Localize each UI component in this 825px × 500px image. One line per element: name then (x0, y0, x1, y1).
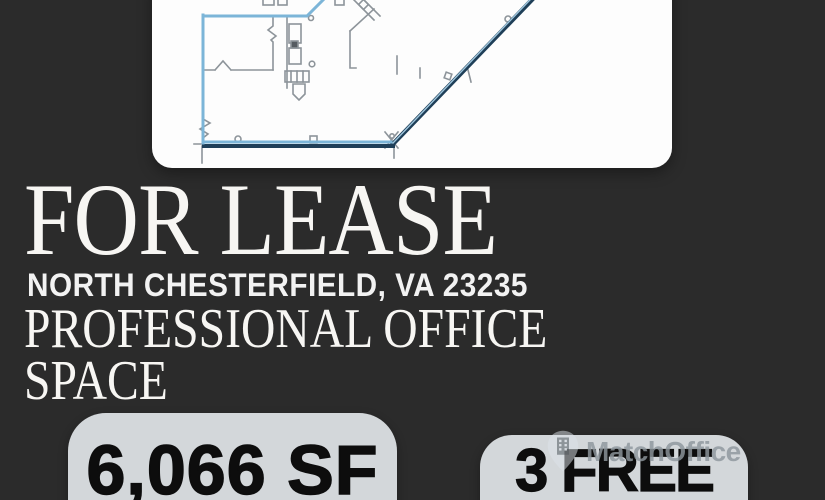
location-line: NORTH CHESTERFIELD, VA 23235 (27, 269, 528, 301)
offer-badge-label: 3 FREE (480, 435, 748, 500)
page-title: FOR LEASE (24, 169, 497, 272)
area-badge-label: 6,066 SF (68, 413, 397, 500)
flyer-poster: FOR LEASE NORTH CHESTERFIELD, VA 23235 P… (0, 0, 825, 500)
floor-plan-drawing (152, 0, 672, 168)
area-badge: 6,066 SF (68, 413, 397, 500)
subtitle: PROFESSIONAL OFFICE SPACE (24, 303, 611, 407)
floor-plan-card (152, 0, 672, 168)
offer-badge: 3 FREE (480, 435, 748, 500)
